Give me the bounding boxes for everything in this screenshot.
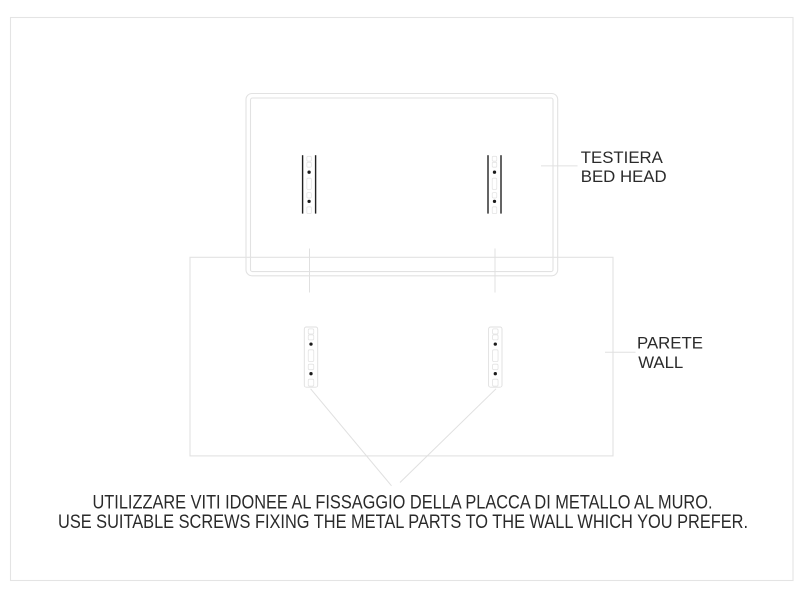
svg-text:UTILIZZARE VITI IDONEE AL FISS: UTILIZZARE VITI IDONEE AL FISSAGGIO DELL… (93, 493, 713, 514)
svg-text:WALL: WALL (638, 353, 683, 372)
svg-text:USE SUITABLE SCREWS FIXING THE: USE SUITABLE SCREWS FIXING THE METAL PAR… (58, 512, 748, 533)
svg-text:PARETE: PARETE (637, 334, 703, 353)
svg-text:BED HEAD: BED HEAD (581, 167, 667, 186)
svg-text:TESTIERA: TESTIERA (581, 148, 664, 167)
